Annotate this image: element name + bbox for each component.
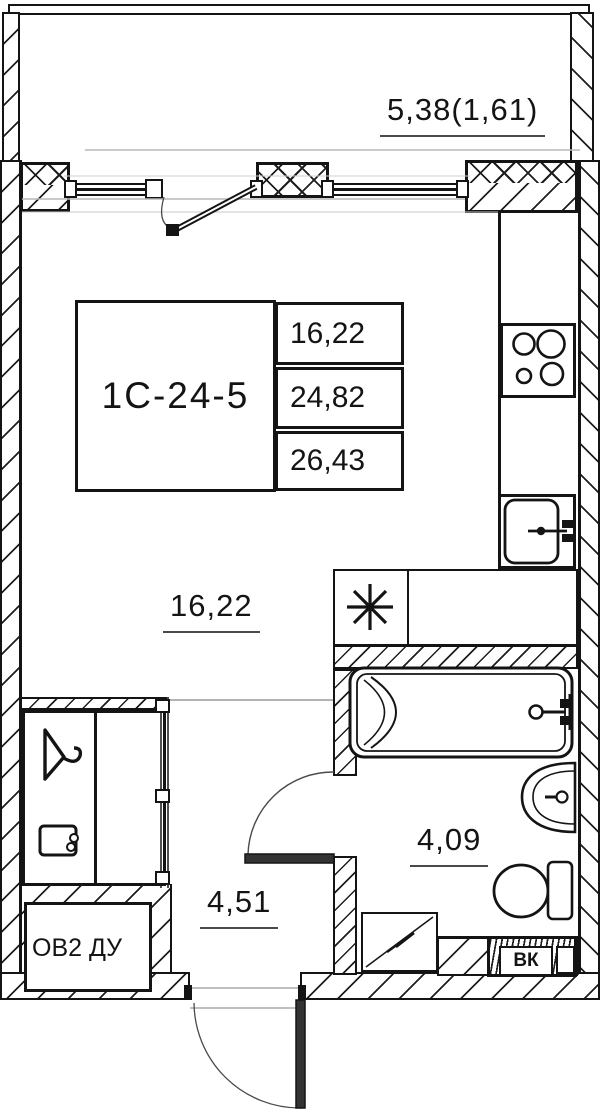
plumbing-shaft-label: ВК	[501, 948, 551, 974]
hanger-icon	[45, 730, 80, 779]
floor-plan-canvas: 5,38(1,61) 1С-24-5 16,22 24,82 26,43	[0, 0, 600, 1117]
washing-machine-icon	[362, 913, 437, 971]
toilet-icon	[494, 862, 572, 919]
plumbing-shaft-small-cell	[556, 946, 575, 974]
hallway-area-label: 4,51	[200, 884, 278, 929]
fridge-asterisk-icon	[347, 584, 393, 630]
vent-shaft-label: ОВ2 ДУ	[32, 934, 122, 963]
bathtub-icon	[350, 668, 572, 757]
balcony-area-label: 5,38(1,61)	[380, 92, 545, 137]
bathroom-door	[245, 772, 334, 863]
entry-door-arc	[194, 1003, 301, 1108]
entry-jamb-right	[298, 985, 306, 1000]
washbasin-icon	[522, 763, 575, 832]
entry-jamb-left	[184, 985, 192, 1000]
entry-door-leaf	[296, 1000, 305, 1108]
bathroom-door-arc	[248, 772, 334, 854]
stove-burners-icon	[514, 331, 565, 386]
plumbing-shaft-inner: ВК	[499, 946, 553, 976]
kitchen-sink-icon	[505, 500, 573, 563]
living-room-area-label: 16,22	[163, 588, 260, 633]
storage-box-icon	[40, 826, 78, 855]
wardrobe-sliding-rail	[156, 697, 169, 888]
bathroom-area-label: 4,09	[410, 822, 488, 867]
bathroom-door-leaf	[245, 854, 334, 863]
entry-door	[184, 985, 306, 1108]
balcony-door-hinge-block	[166, 224, 179, 236]
